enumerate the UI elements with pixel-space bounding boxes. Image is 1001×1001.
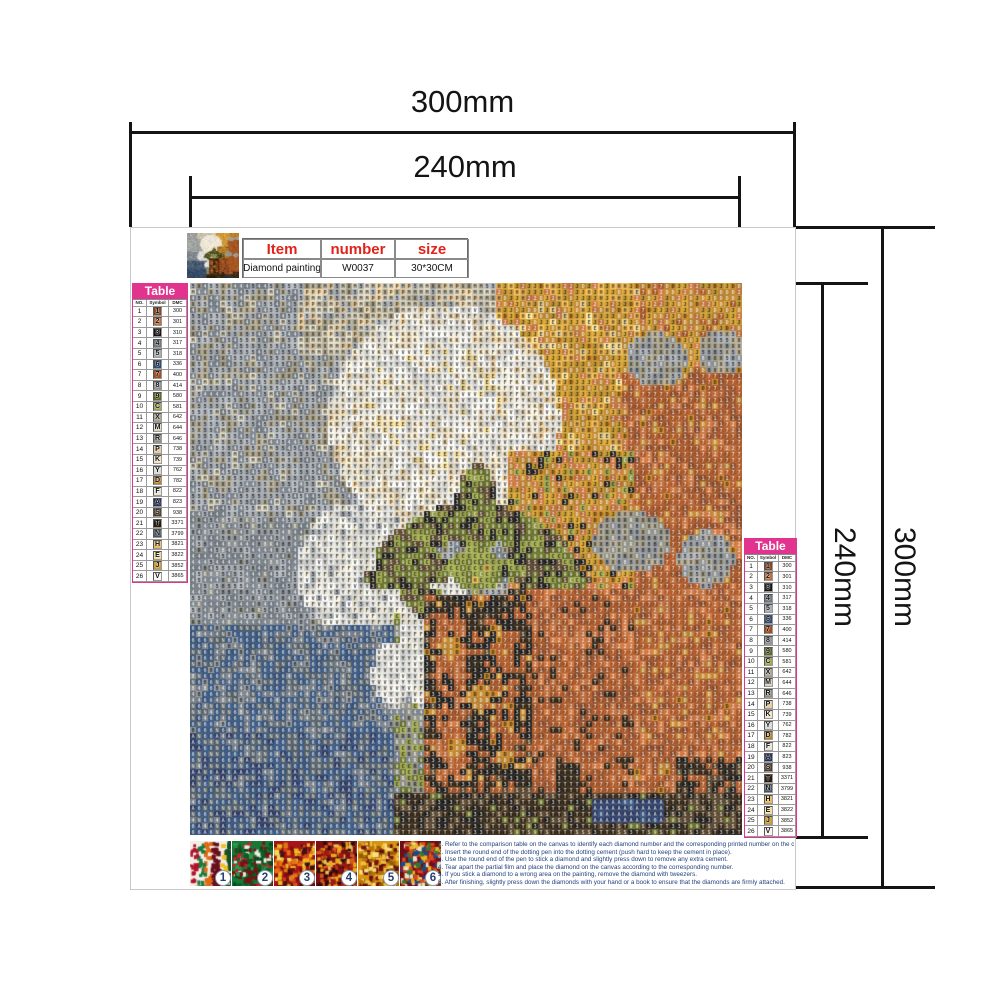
dmc-code: 336: [779, 615, 796, 626]
symbol-cell: X: [147, 413, 169, 424]
dmc-code: 938: [169, 508, 187, 519]
symbol-cell: F: [147, 487, 169, 498]
dmc-code: 642: [169, 413, 187, 424]
symbol-cell: 6: [758, 615, 779, 626]
dmc-code: 310: [169, 328, 187, 339]
symbol-swatch: M: [153, 423, 162, 432]
symbol-cell: V: [758, 826, 779, 837]
symbol-table-row: 22301: [745, 572, 796, 583]
row-number: 14: [745, 699, 758, 710]
dimension-label-right-outer: 300mm: [887, 492, 921, 662]
symbol-swatch: X: [153, 413, 162, 422]
dimension-tick: [129, 122, 132, 227]
symbol-table-column-header: DMC: [169, 300, 187, 307]
symbol-table-row: 44317: [133, 338, 187, 349]
symbol-table-row: 16Y762: [133, 466, 187, 477]
symbol-swatch: 6: [764, 615, 773, 624]
symbol-cell: R: [147, 434, 169, 445]
instruction-line: 2. Insert the round end of the dotting p…: [438, 849, 794, 857]
dmc-code: 782: [169, 476, 187, 487]
row-number: 19: [133, 497, 147, 508]
symbol-cell: J: [147, 561, 169, 572]
symbol-cell: C: [147, 402, 169, 413]
symbol-swatch: X: [764, 668, 773, 677]
step-photo-3: 3: [274, 841, 315, 886]
symbol-table-row: 21T3371: [133, 518, 187, 529]
row-number: 24: [133, 550, 147, 561]
symbol-table-row: 66336: [133, 360, 187, 371]
symbol-swatch: 8: [153, 381, 162, 390]
dimension-tick: [795, 226, 935, 229]
row-number: 16: [133, 466, 147, 477]
symbol-table-row: 11X642: [133, 413, 187, 424]
symbol-cell: 8: [147, 381, 169, 392]
symbol-table-row: 15K739: [133, 455, 187, 466]
row-number: 21: [745, 773, 758, 784]
info-header-size: size: [395, 239, 469, 259]
symbol-table-row: 25J3852: [745, 816, 796, 827]
row-number: 17: [133, 476, 147, 487]
row-number: 9: [133, 391, 147, 402]
dmc-code: 580: [169, 391, 187, 402]
symbol-cell: 5: [147, 349, 169, 360]
symbol-table-row: 18F822: [133, 487, 187, 498]
symbol-table-row: 22301: [133, 317, 187, 328]
info-value-size: 30*30CM: [395, 259, 469, 278]
dmc-code: 938: [779, 763, 796, 774]
symbol-swatch: A: [153, 498, 162, 507]
symbol-swatch: 6: [153, 360, 162, 369]
symbol-swatch: P: [764, 700, 773, 709]
row-number: 23: [133, 540, 147, 551]
row-number: 3: [133, 328, 147, 339]
symbol-cell: V: [147, 571, 169, 582]
symbol-cell: 5: [758, 604, 779, 615]
dmc-code: 644: [169, 423, 187, 434]
dmc-code: 3822: [169, 550, 187, 561]
symbol-table-row: 17D782: [133, 476, 187, 487]
dmc-code: 414: [779, 636, 796, 647]
row-number: 5: [745, 604, 758, 615]
dimension-label-top-inner: 240mm: [190, 149, 740, 185]
symbol-swatch: R: [153, 434, 162, 443]
symbol-cell: 9: [147, 391, 169, 402]
symbol-table-row: 24E3822: [745, 805, 796, 816]
symbol-swatch: V: [153, 572, 162, 581]
symbol-swatch: K: [153, 455, 162, 464]
symbol-table-row: 25J3852: [133, 561, 187, 572]
instruction-line: 3. Use the round end of the pen to stick…: [438, 856, 794, 864]
symbol-cell: 4: [758, 593, 779, 604]
dmc-code: 300: [169, 307, 187, 318]
instruction-line: 4. Tear apart the partial film and place…: [438, 864, 794, 872]
row-number: 10: [745, 657, 758, 668]
symbol-table-row: 66336: [745, 615, 796, 626]
info-value-number: W0037: [321, 259, 395, 278]
dmc-code: 581: [169, 402, 187, 413]
symbol-cell: J: [758, 816, 779, 827]
dmc-code: 739: [169, 455, 187, 466]
symbol-cell: E: [758, 805, 779, 816]
dmc-code: 310: [779, 583, 796, 594]
row-number: 14: [133, 444, 147, 455]
symbol-swatch: 1: [764, 562, 773, 571]
symbol-table-row: 19A823: [133, 497, 187, 508]
symbol-cell: N: [147, 529, 169, 540]
row-number: 24: [745, 805, 758, 816]
dmc-code: 782: [779, 731, 796, 742]
dmc-code: 762: [779, 721, 796, 732]
dmc-code: 3852: [169, 561, 187, 572]
symbol-swatch: N: [153, 529, 162, 538]
symbol-cell: M: [147, 423, 169, 434]
symbol-table-row: 11300: [133, 307, 187, 318]
symbol-table-row: 10C581: [133, 402, 187, 413]
dimension-tick: [793, 122, 796, 227]
dmc-code: 823: [169, 497, 187, 508]
row-number: 15: [133, 455, 147, 466]
dmc-code: 581: [779, 657, 796, 668]
symbol-table-row: 17D782: [745, 731, 796, 742]
row-number: 11: [133, 413, 147, 424]
symbol-swatch: 4: [153, 339, 162, 348]
dmc-code: 738: [169, 444, 187, 455]
symbol-cell: E: [147, 550, 169, 561]
dimension-line-right-inner: [821, 283, 824, 838]
symbol-cell: R: [758, 689, 779, 700]
dmc-code: 644: [779, 678, 796, 689]
dmc-code: 336: [169, 360, 187, 371]
symbol-cell: N: [758, 784, 779, 795]
instruction-line: 1. Refer to the comparison table on the …: [438, 841, 794, 849]
symbol-cell: A: [758, 752, 779, 763]
symbol-table-row: 24E3822: [133, 550, 187, 561]
symbol-cell: T: [758, 773, 779, 784]
symbol-cell: 9: [758, 646, 779, 657]
dmc-code: 822: [779, 742, 796, 753]
dmc-code: 3852: [779, 816, 796, 827]
symbol-table-row: 21T3371: [745, 773, 796, 784]
symbol-cell: F: [758, 742, 779, 753]
symbol-table-row: 22N3799: [745, 784, 796, 795]
symbol-table-title: Table: [133, 284, 187, 300]
symbol-table-row: 33310: [745, 583, 796, 594]
symbol-cell: C: [758, 657, 779, 668]
symbol-table-row: 88414: [133, 381, 187, 392]
dmc-code: 3865: [779, 826, 796, 837]
dmc-code: 822: [169, 487, 187, 498]
symbol-table-column-header: NO.: [133, 300, 147, 307]
symbol-swatch: 9: [764, 647, 773, 656]
dmc-code: 414: [169, 381, 187, 392]
dimension-label-right-inner: 240mm: [827, 492, 861, 662]
dmc-code: 301: [779, 572, 796, 583]
symbol-table-row: 11300: [745, 562, 796, 573]
dmc-code: 301: [169, 317, 187, 328]
symbol-cell: P: [758, 699, 779, 710]
row-number: 23: [745, 795, 758, 806]
symbol-swatch: M: [764, 678, 773, 687]
symbol-swatch: D: [153, 476, 162, 485]
row-number: 18: [745, 742, 758, 753]
info-header-item: Item: [243, 239, 321, 259]
dimension-label-top-outer: 300mm: [130, 84, 795, 120]
dmc-code: 738: [779, 699, 796, 710]
symbol-cell: H: [147, 540, 169, 551]
symbol-table-row: 26V3865: [133, 571, 187, 582]
symbol-table-column-header: Symbol: [147, 300, 169, 307]
step-photo-6: 6: [400, 841, 441, 886]
symbol-swatch: R: [764, 689, 773, 698]
symbol-table-row: 14P738: [745, 699, 796, 710]
row-number: 7: [133, 370, 147, 381]
row-number: 12: [745, 678, 758, 689]
row-number: 20: [133, 508, 147, 519]
step-photo-4: 4: [316, 841, 357, 886]
symbol-swatch: F: [153, 487, 162, 496]
symbol-table-row: 16Y762: [745, 721, 796, 732]
symbol-cell: K: [147, 455, 169, 466]
symbol-cell: 3: [147, 328, 169, 339]
symbol-swatch: S: [153, 508, 162, 517]
symbol-cell: S: [758, 763, 779, 774]
row-number: 9: [745, 646, 758, 657]
symbol-swatch: P: [153, 445, 162, 454]
symbol-table-row: 88414: [745, 636, 796, 647]
row-number: 15: [745, 710, 758, 721]
symbol-table-row: 23H3821: [133, 540, 187, 551]
row-number: 4: [745, 593, 758, 604]
symbol-cell: 2: [147, 317, 169, 328]
symbol-table-row: 22N3799: [133, 529, 187, 540]
symbol-table-row: 13R646: [745, 689, 796, 700]
row-number: 6: [745, 615, 758, 626]
dmc-code: 3371: [779, 773, 796, 784]
instruction-line: 6. After finishing, slightly press down …: [438, 879, 794, 887]
painting-preview-thumbnail: [187, 233, 239, 278]
row-number: 4: [133, 338, 147, 349]
symbol-table-row: 11X642: [745, 668, 796, 679]
symbol-cell: P: [147, 444, 169, 455]
dmc-code: 3865: [169, 571, 187, 582]
dmc-code: 739: [779, 710, 796, 721]
symbol-swatch: T: [764, 774, 773, 783]
row-number: 3: [745, 583, 758, 594]
symbol-swatch: 2: [764, 572, 773, 581]
symbol-table-row: 18F822: [745, 742, 796, 753]
symbol-swatch: 9: [153, 392, 162, 401]
symbol-swatch: N: [764, 784, 773, 793]
symbol-table-row: 23H3821: [745, 795, 796, 806]
symbol-cell: 4: [147, 338, 169, 349]
symbol-cell: 6: [147, 360, 169, 371]
row-number: 5: [133, 349, 147, 360]
symbol-swatch: 5: [764, 604, 773, 613]
symbol-table-row: 77400: [133, 370, 187, 381]
symbol-swatch: A: [764, 753, 773, 762]
dmc-code: 762: [169, 466, 187, 477]
symbol-table-row: 44317: [745, 593, 796, 604]
row-number: 25: [133, 561, 147, 572]
dmc-code: 3822: [779, 805, 796, 816]
dimension-line-right-outer: [881, 227, 884, 889]
row-number: 2: [133, 317, 147, 328]
product-spec-page: 300mm 240mm 240mm 300mm Item number size…: [0, 0, 1001, 1001]
symbol-table-row: 99580: [133, 391, 187, 402]
symbol-cell: D: [758, 731, 779, 742]
symbol-table-left: TableNO.SymbolDMC11300223013331044317553…: [132, 283, 188, 583]
dmc-code: 317: [779, 593, 796, 604]
row-number: 6: [133, 360, 147, 371]
symbol-table-row: 33310: [133, 328, 187, 339]
symbol-swatch: D: [764, 731, 773, 740]
dmc-code: 317: [169, 338, 187, 349]
step-number-badge: 3: [299, 870, 315, 886]
row-number: 25: [745, 816, 758, 827]
symbol-table-row: 12M644: [133, 423, 187, 434]
row-number: 1: [745, 562, 758, 573]
symbol-table-row: 55318: [133, 349, 187, 360]
symbol-table-row: 15K739: [745, 710, 796, 721]
symbol-swatch: E: [153, 551, 162, 560]
row-number: 22: [133, 529, 147, 540]
step-photo-2: 2: [232, 841, 273, 886]
symbol-cell: Y: [147, 466, 169, 477]
row-number: 20: [745, 763, 758, 774]
row-number: 22: [745, 784, 758, 795]
symbol-cell: X: [758, 668, 779, 679]
step-photo-5: 5: [358, 841, 399, 886]
symbol-swatch: 7: [153, 370, 162, 379]
instruction-line: 5. If you stick a diamond to a wrong are…: [438, 871, 794, 879]
symbol-table-row: 19A823: [745, 752, 796, 763]
symbol-swatch: K: [764, 710, 773, 719]
dmc-code: 646: [169, 434, 187, 445]
symbol-cell: D: [147, 476, 169, 487]
symbol-table-column-header: NO.: [745, 555, 758, 562]
row-number: 18: [133, 487, 147, 498]
step-photo-1: 1: [190, 841, 231, 886]
symbol-table-row: 55318: [745, 604, 796, 615]
row-number: 1: [133, 307, 147, 318]
step-number-badge: 5: [383, 870, 399, 886]
symbol-swatch: H: [153, 540, 162, 549]
dimension-line-top-outer: [130, 131, 795, 134]
row-number: 7: [745, 625, 758, 636]
symbol-table-column-header: DMC: [779, 555, 796, 562]
row-number: 16: [745, 721, 758, 732]
symbol-swatch: 1: [153, 307, 162, 316]
symbol-table-row: 99580: [745, 646, 796, 657]
row-number: 8: [133, 381, 147, 392]
symbol-swatch: V: [764, 827, 773, 836]
row-number: 13: [133, 434, 147, 445]
symbol-cell: 3: [758, 583, 779, 594]
symbol-table-row: 77400: [745, 625, 796, 636]
row-number: 26: [133, 571, 147, 582]
row-number: 19: [745, 752, 758, 763]
symbol-table-right: TableNO.SymbolDMC11300223013331044317553…: [744, 538, 797, 838]
symbol-cell: 7: [147, 370, 169, 381]
row-number: 2: [745, 572, 758, 583]
symbol-cell: 2: [758, 572, 779, 583]
dmc-code: 3371: [169, 518, 187, 529]
symbol-swatch: F: [764, 742, 773, 751]
symbol-swatch: 2: [153, 317, 162, 326]
diamond-pattern-canvas: [190, 283, 742, 835]
symbol-cell: 8: [758, 636, 779, 647]
row-number: 10: [133, 402, 147, 413]
dimension-tick: [795, 886, 935, 889]
symbol-swatch: T: [153, 519, 162, 528]
row-number: 12: [133, 423, 147, 434]
symbol-swatch: 7: [764, 625, 773, 634]
dmc-code: 400: [169, 370, 187, 381]
symbol-cell: M: [758, 678, 779, 689]
dmc-code: 823: [779, 752, 796, 763]
symbol-swatch: 4: [764, 594, 773, 603]
dmc-code: 646: [779, 689, 796, 700]
row-number: 13: [745, 689, 758, 700]
symbol-swatch: 3: [153, 328, 162, 337]
symbol-cell: H: [758, 795, 779, 806]
step-number-badge: 4: [341, 870, 357, 886]
symbol-swatch: Y: [764, 721, 773, 730]
dmc-code: 3821: [169, 540, 187, 551]
symbol-table-title: Table: [745, 539, 796, 555]
dmc-code: 580: [779, 646, 796, 657]
row-number: 11: [745, 668, 758, 679]
dimension-line-top-inner: [190, 196, 740, 199]
symbol-table-row: 20S938: [133, 508, 187, 519]
symbol-swatch: J: [764, 816, 773, 825]
row-number: 26: [745, 826, 758, 837]
symbol-swatch: E: [764, 806, 773, 815]
item-info-table: Item number size Diamond painting W0037 …: [242, 238, 468, 278]
info-value-item: Diamond painting: [243, 259, 321, 278]
symbol-table-row: 26V3865: [745, 826, 796, 837]
symbol-swatch: C: [764, 657, 773, 666]
step-number-badge: 2: [257, 870, 273, 886]
symbol-swatch: 5: [153, 349, 162, 358]
symbol-swatch: J: [153, 561, 162, 570]
dmc-code: 3799: [169, 529, 187, 540]
symbol-swatch: S: [764, 763, 773, 772]
symbol-swatch: 8: [764, 636, 773, 645]
symbol-table-row: 13R646: [133, 434, 187, 445]
dmc-code: 3821: [779, 795, 796, 806]
symbol-table-row: 10C581: [745, 657, 796, 668]
symbol-swatch: Y: [153, 466, 162, 475]
symbol-cell: S: [147, 508, 169, 519]
symbol-cell: K: [758, 710, 779, 721]
symbol-table-row: 12M644: [745, 678, 796, 689]
symbol-cell: T: [147, 518, 169, 529]
symbol-table-row: 20S938: [745, 763, 796, 774]
row-number: 21: [133, 518, 147, 529]
dmc-code: 642: [779, 668, 796, 679]
step-number-badge: 1: [215, 870, 231, 886]
symbol-cell: 1: [147, 307, 169, 318]
symbol-cell: 1: [758, 562, 779, 573]
instructions-list: 1. Refer to the comparison table on the …: [438, 841, 794, 886]
dmc-code: 400: [779, 625, 796, 636]
symbol-swatch: C: [153, 402, 162, 411]
info-header-number: number: [321, 239, 395, 259]
row-number: 8: [745, 636, 758, 647]
dmc-code: 318: [779, 604, 796, 615]
symbol-swatch: 3: [764, 583, 773, 592]
